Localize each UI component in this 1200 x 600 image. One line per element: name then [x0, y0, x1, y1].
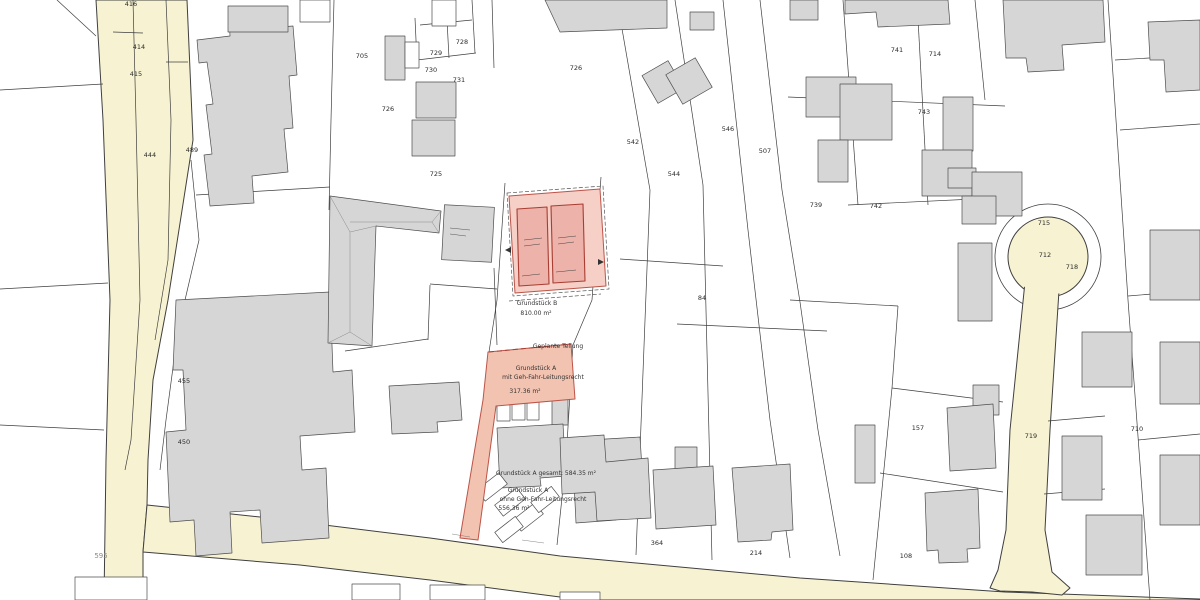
building: [855, 425, 875, 483]
building: [1160, 342, 1200, 404]
building: [1150, 230, 1200, 300]
building-outline-partial: [352, 584, 400, 600]
parcel-label: 544: [668, 170, 680, 178]
building: [947, 404, 996, 471]
building-outline-partial: [560, 592, 600, 600]
building: [962, 196, 996, 224]
parcel-label: 741: [891, 46, 903, 54]
parcel-label: 455: [178, 377, 190, 385]
parcel-label: 739: [810, 201, 822, 209]
building: [1082, 332, 1132, 387]
building: [690, 12, 714, 30]
area-label-grundstueck-b: Grundstück B: [517, 300, 558, 307]
building-whs: [412, 120, 455, 156]
parcel-label: 710: [1131, 425, 1143, 433]
parcel-label: 546: [722, 125, 734, 133]
parcel-label: 715: [1038, 219, 1050, 227]
parcel-label: 157: [912, 424, 924, 432]
building: [958, 243, 992, 321]
building-outline: [405, 42, 419, 68]
label-geplante-teilung: Geplante Teilung: [533, 343, 584, 350]
parcel-label: 726: [570, 64, 582, 72]
parcel-label: 728: [456, 38, 468, 46]
building-outline-partial: [430, 585, 485, 600]
area-label-grundstueck-a-recht: mit Geh-Fahr-Leitungsrecht: [502, 374, 584, 381]
planned-house: [551, 204, 585, 283]
parcel-label: 726: [382, 105, 394, 113]
parcel-label: 364: [651, 539, 663, 547]
area-label-grundstueck-a-gesamt: Grundstück A gesamt: 584.35 m²: [496, 470, 597, 477]
parcel-label: 414: [133, 43, 145, 51]
building: [1160, 455, 1200, 525]
parcel-label: 450: [178, 438, 190, 446]
street-parcel-label: 719: [1025, 432, 1037, 440]
planned-house: [517, 207, 549, 286]
map-viewport: 4164144154444894554505957057267287297307…: [0, 0, 1200, 600]
parcel-label: 415: [130, 70, 142, 78]
parcel-label: 714: [929, 50, 941, 58]
parcel-label: 731: [453, 76, 465, 84]
parcel-label: 507: [759, 147, 771, 155]
parcel-label: 214: [750, 549, 762, 557]
building: [545, 0, 667, 32]
area-label-grundstueck-a: Grundstück A: [516, 365, 557, 372]
building: [166, 292, 355, 556]
building: [818, 140, 848, 182]
building-annex: [442, 205, 495, 263]
building: [1062, 436, 1102, 500]
building: [790, 0, 818, 20]
parcel-label: 542: [627, 138, 639, 146]
parcel-label: 108: [900, 552, 912, 560]
parcel-label: 718: [1066, 263, 1078, 271]
parcel-label: 730: [425, 66, 437, 74]
building: [732, 464, 793, 542]
building: [385, 36, 405, 80]
parcel-label: 729: [430, 49, 442, 57]
area-label-grundstueck-a-size: 317.36 m²: [509, 388, 541, 395]
parcel-label: 416: [125, 0, 137, 8]
building-whs: [416, 82, 456, 118]
area-label-grundstueck-a2-recht: ohne Geh-Fahr-Leitungsrecht: [500, 496, 587, 503]
parcel-label: 84: [698, 294, 706, 302]
parcel-label: 489: [186, 146, 198, 154]
building-outline: [432, 0, 456, 26]
building: [943, 97, 973, 151]
parcel-label: 743: [918, 108, 930, 116]
street-parcel-label: 595: [94, 552, 107, 560]
building: [228, 6, 288, 32]
area-label-grundstueck-b-size: 810.00 m²: [520, 310, 552, 317]
building: [1086, 515, 1142, 575]
parcel-label: 444: [144, 151, 156, 159]
parcel-label: 742: [870, 202, 882, 210]
building: [840, 84, 892, 140]
parcel-label: 712: [1039, 251, 1051, 259]
parcel-label: 725: [430, 170, 442, 178]
parcel-label: 705: [356, 52, 368, 60]
cadastral-map: 4164144154444894554505957057267287297307…: [0, 0, 1200, 600]
area-label-grundstueck-a2: Grundstück A: [508, 487, 549, 494]
building-outline-partial: [75, 577, 147, 600]
building-outline: [300, 0, 330, 22]
building: [653, 466, 716, 529]
area-label-grundstueck-a2-size: 556.36 m²: [498, 505, 530, 512]
